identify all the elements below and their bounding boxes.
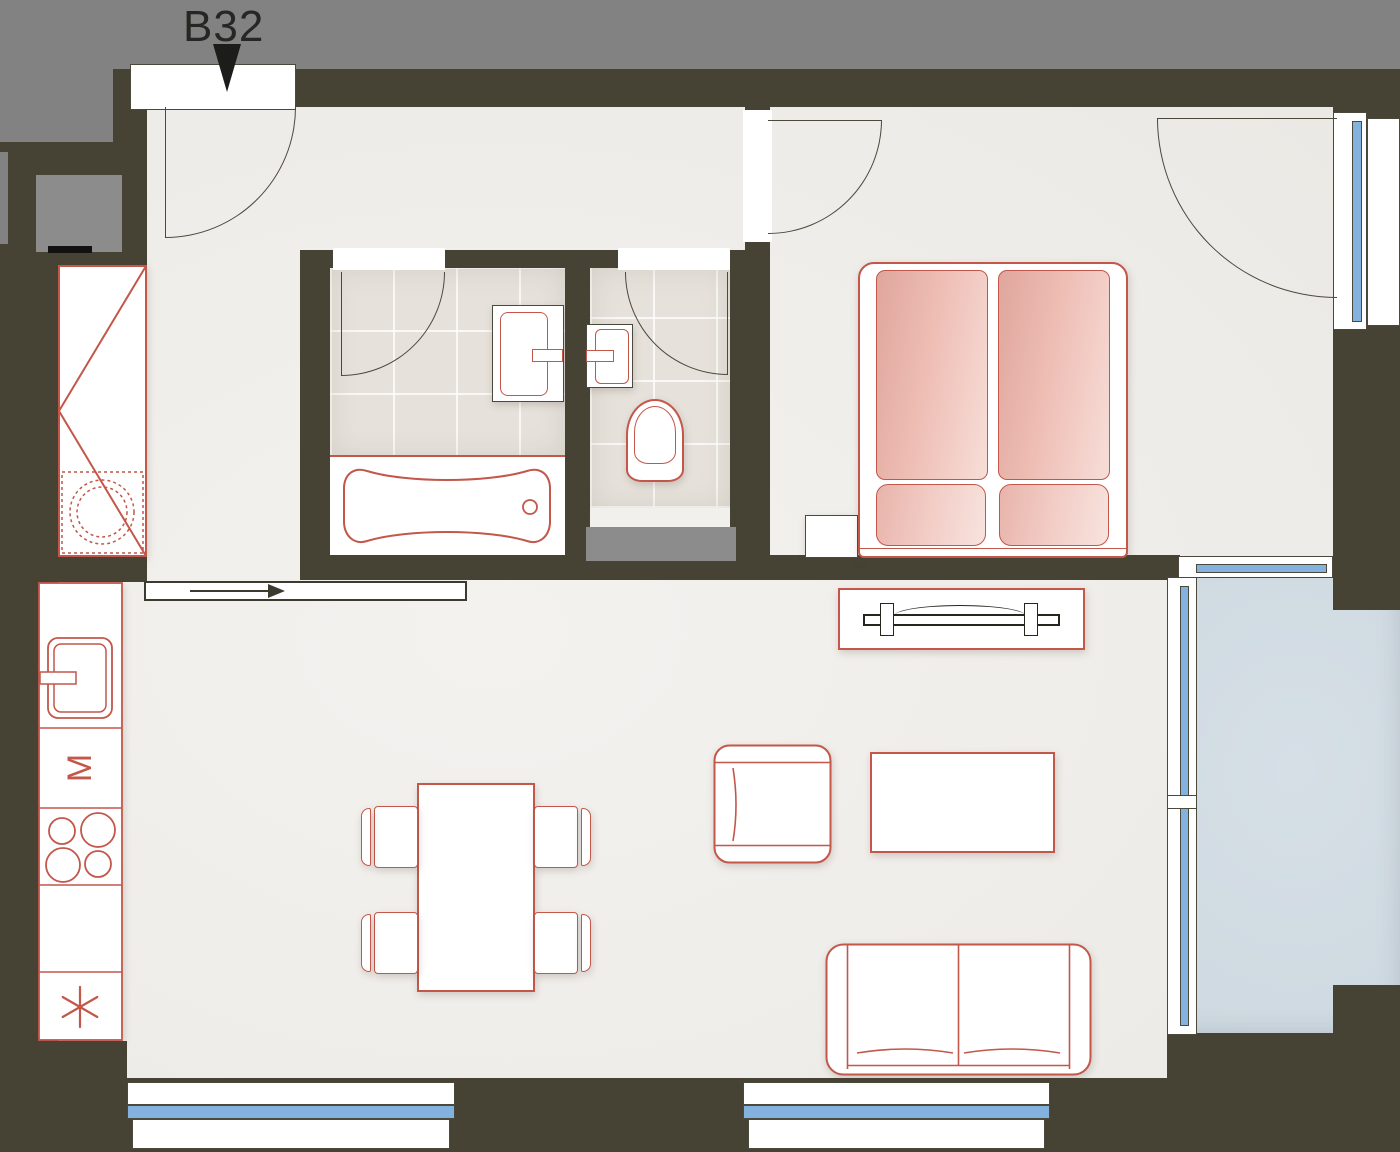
dining-chair-back [581,808,591,866]
coffee-table [870,752,1055,853]
dining-chair-back [361,808,371,866]
wc-faucet [586,350,614,362]
tv-curve [894,605,1026,616]
sliding-door-arrow [190,590,270,592]
corridor [0,152,8,244]
bathtub-zone [330,455,565,558]
floor-plan: M [0,0,1400,1152]
living-window-outer-sill [132,1119,450,1149]
tv-sideboard [838,588,1085,650]
bedroom-window-glass [1196,564,1327,573]
dining-chair [534,912,578,974]
toilet [626,399,684,482]
kitchen-faucet [40,672,76,684]
kitchen-counter: M [38,582,123,1041]
bathroom-door-opening [333,248,445,270]
dining-chair [374,912,418,974]
bathroom-sink [492,305,564,402]
duct-shaft [36,175,122,252]
bed-duvet [998,270,1110,480]
wc-door-opening [618,248,730,270]
balcony-glazing-mullion [1167,795,1197,809]
living-window-sill [127,1082,455,1105]
entrance-door-swing [165,107,296,238]
kitchen-counter-drawing: M [38,582,123,1041]
kitchen-tall-cabinet [58,265,147,557]
armchair-drawing [713,744,832,864]
wall [1333,985,1400,1033]
wall [730,250,770,580]
double-bed [858,262,1128,558]
dining-table [417,783,535,992]
duct-shaft-vent [48,246,92,253]
wc-sink [586,324,633,388]
armchair [713,744,832,864]
sofa-drawing [825,941,1092,1078]
wall [565,268,590,558]
tv-foot [880,603,894,636]
sofa [825,941,1092,1078]
balcony-floor [1167,556,1400,1033]
sliding-door-arrow-tip [268,584,285,598]
duct-shaft [586,527,736,561]
wall [1167,1033,1400,1152]
bedroom-door-swing [768,120,882,234]
bathroom-faucet [532,349,563,362]
entrance-marker-icon [213,44,241,92]
nightstand [805,515,858,558]
bedroom-balcony-door-swing [1157,118,1337,298]
wall [760,555,1180,580]
living-window-outer-sill [748,1119,1045,1149]
bed-duvet [876,270,988,480]
bed-pillow [876,484,986,546]
bed-base-line [860,548,1126,549]
bedroom-balcony-door-sill [1367,118,1400,326]
corridor [0,69,113,142]
dining-chair [534,806,578,868]
bed-pillow [999,484,1109,546]
dining-chair-back [361,914,371,972]
living-window-sill [743,1082,1050,1105]
dishwasher-symbol: M [61,754,99,782]
bedroom-balcony-door-glass [1352,121,1362,322]
wall [0,1041,127,1078]
bathtub [337,461,558,553]
tv-foot [1024,603,1038,636]
kitchen-tall-cabinet-drawing [58,265,147,557]
living-window-glass [127,1105,455,1119]
wall [300,268,330,558]
living-window-glass [743,1105,1050,1119]
dining-chair [374,806,418,868]
dining-chair-back [581,914,591,972]
wall [0,557,147,582]
